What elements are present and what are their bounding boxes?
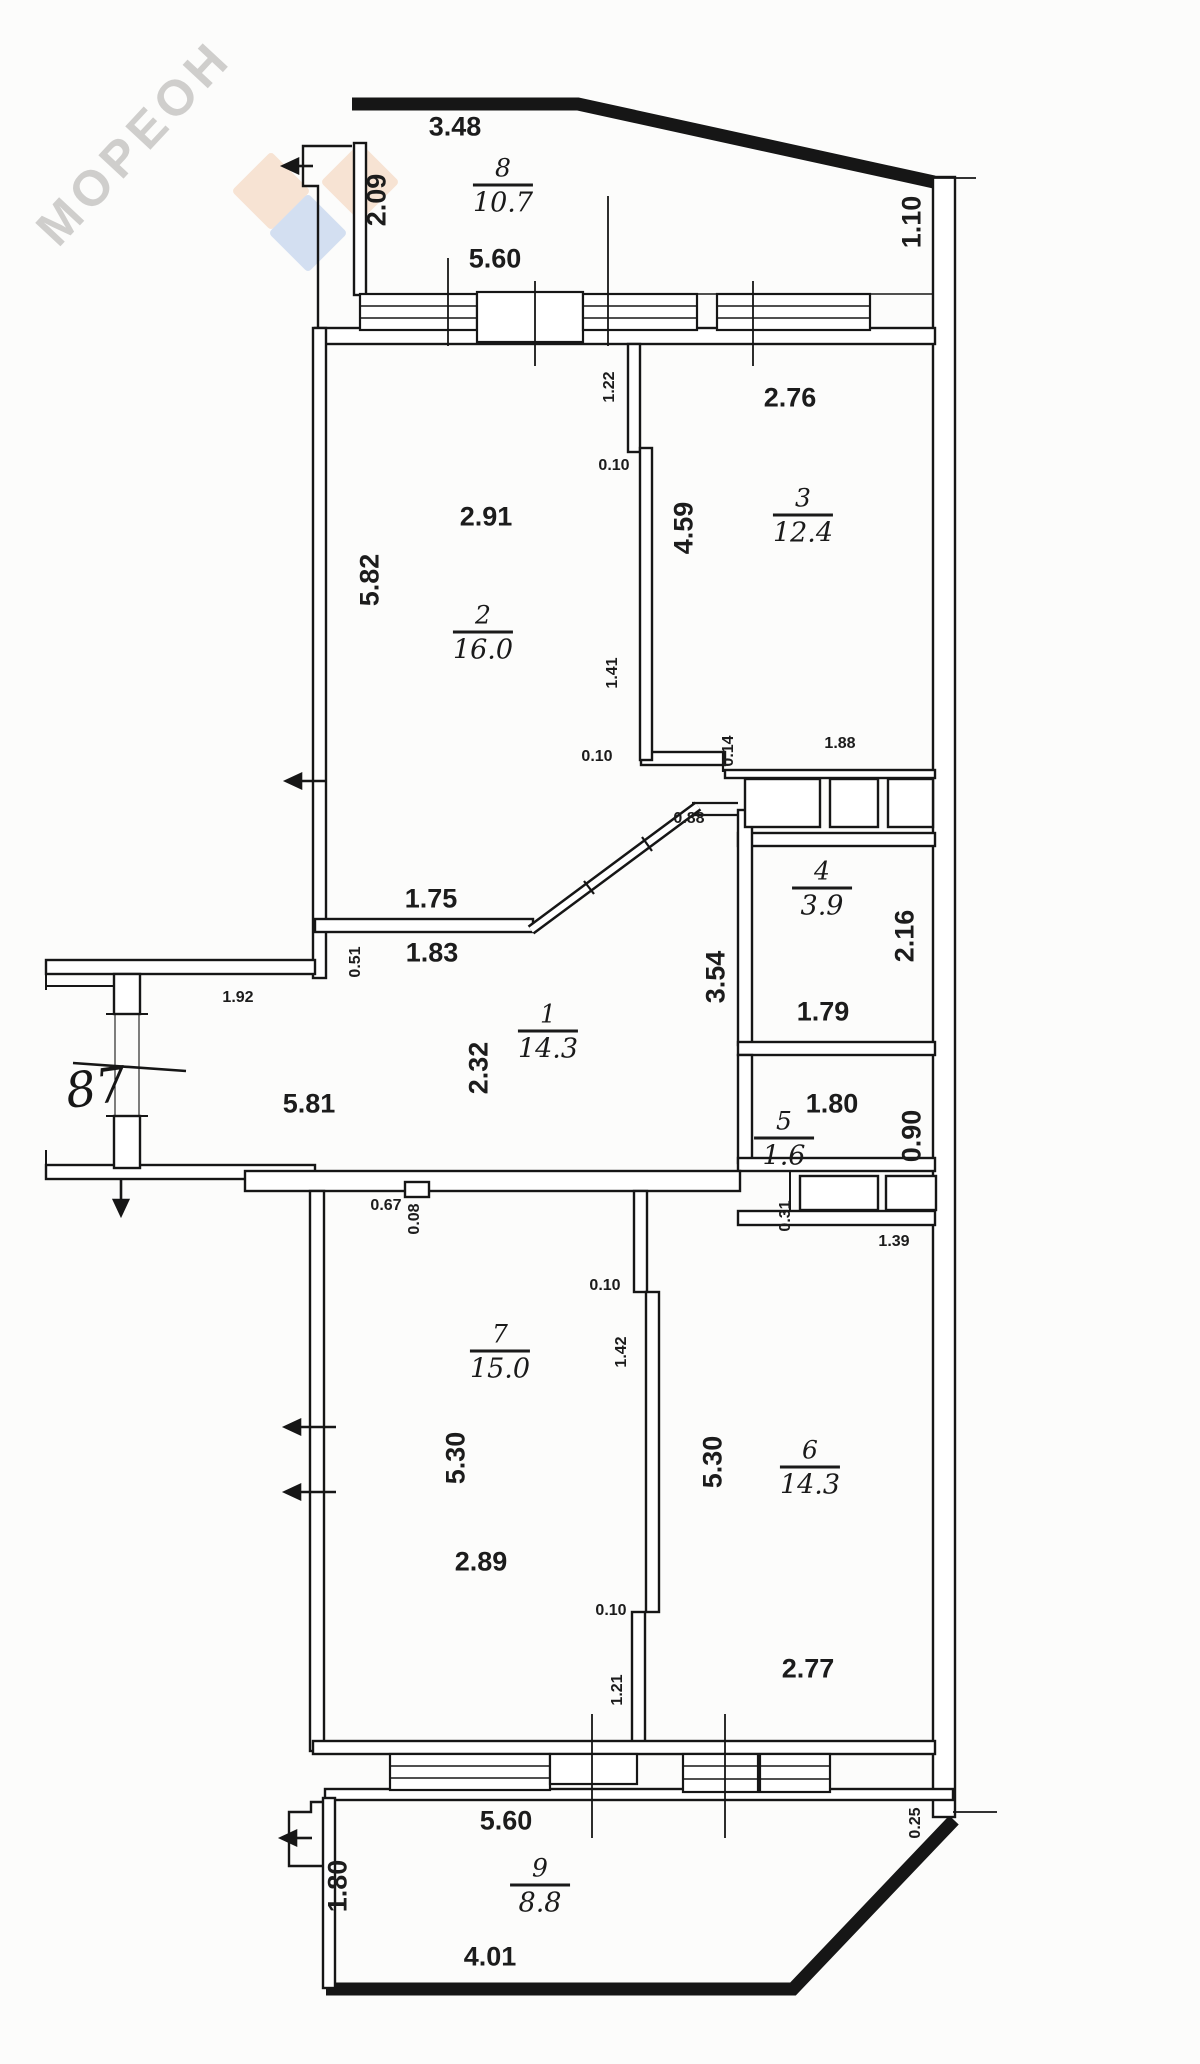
room1-number: 1 [518, 1002, 578, 1033]
dim-room7-height: 5.30 [443, 1432, 470, 1485]
dim-room6-height: 5.30 [700, 1436, 727, 1489]
room2-area: 16.0 [453, 634, 513, 664]
dim-hall-jog: 0.51 [348, 946, 364, 977]
room4-label: 4 3.9 [792, 859, 852, 920]
dim-room4-height: 2.16 [892, 910, 919, 963]
room1-area: 14.3 [518, 1033, 578, 1063]
dim-balcony8-bottom: 5.60 [469, 246, 522, 273]
room1-label: 1 14.3 [518, 1002, 578, 1063]
dim-notch-depth: 0.08 [407, 1203, 423, 1234]
room9-area: 8.8 [510, 1887, 570, 1917]
room6-number: 6 [780, 1438, 840, 1469]
room6-label: 6 14.3 [780, 1438, 840, 1499]
dim-hall-right: 3.54 [703, 951, 730, 1004]
room5-label: 5 1.6 [754, 1109, 814, 1170]
room3-label: 3 12.4 [773, 486, 833, 547]
dim-room6-width: 2.77 [782, 1656, 835, 1683]
dim-room3-height: 4.59 [671, 502, 698, 555]
room9-number: 9 [510, 1856, 570, 1887]
dim-room2-width: 2.91 [460, 504, 513, 531]
dim-hall-length: 5.81 [283, 1091, 336, 1118]
apartment-number: 87 [62, 1056, 130, 1120]
dim-room5-step: 0.31 [778, 1200, 794, 1231]
room2-label: 2 16.0 [453, 603, 513, 664]
dim-hall-seg-b: 1.83 [406, 940, 459, 967]
dim-partition23-mid: 1.41 [605, 657, 621, 688]
room8-area: 10.7 [473, 187, 533, 217]
dim-balcony8-right: 1.10 [899, 196, 926, 249]
dim-partition23-step: 0.10 [598, 458, 629, 474]
dim-door-088: 0.88 [673, 811, 704, 827]
dim-room4-width: 1.79 [797, 999, 850, 1026]
room3-number: 3 [773, 486, 833, 517]
room7-number: 7 [470, 1322, 530, 1353]
dim-room5-height: 0.90 [899, 1110, 926, 1163]
room9-label: 9 8.8 [510, 1856, 570, 1917]
dim-balcony9-right: 0.25 [908, 1807, 924, 1838]
floor-plan: МОРЕОН [0, 0, 1200, 2064]
room3-area: 12.4 [773, 517, 833, 547]
dim-partition76-low: 1.21 [610, 1674, 626, 1705]
dim-room2-wall: 0.10 [581, 749, 612, 765]
room5-area: 1.6 [754, 1140, 814, 1170]
room5-number: 5 [754, 1109, 814, 1140]
dim-partition23-top: 1.22 [602, 371, 618, 402]
dim-balcony8-top: 3.48 [429, 114, 482, 141]
room7-label: 7 15.0 [470, 1322, 530, 1383]
dim-hall-seg-a: 1.75 [405, 886, 458, 913]
dim-partition76-step2: 0.10 [595, 1603, 626, 1619]
room8-number: 8 [473, 156, 533, 187]
dim-room2-height: 5.82 [357, 554, 384, 607]
dim-partition76-mid: 1.42 [614, 1336, 630, 1367]
room4-area: 3.9 [792, 890, 852, 920]
dim-balcony9-left: 1.80 [325, 1860, 352, 1913]
room2-number: 2 [453, 603, 513, 634]
dim-step-014: 0.14 [721, 735, 737, 766]
dim-room7-width: 2.89 [455, 1549, 508, 1576]
room7-area: 15.0 [470, 1353, 530, 1383]
dim-closet-188: 1.88 [824, 736, 855, 752]
dim-closet-139: 1.39 [878, 1234, 909, 1250]
wall-segments [46, 143, 955, 1988]
dim-hall-entry: 1.92 [222, 990, 253, 1006]
room4-number: 4 [792, 859, 852, 890]
dim-room3-width: 2.76 [764, 385, 817, 412]
room8-label: 8 10.7 [473, 156, 533, 217]
walls-drawing [0, 0, 1200, 2064]
dim-hall-width: 2.32 [466, 1042, 493, 1095]
hall-diagonal-wall [531, 803, 738, 930]
dim-notch-width: 0.67 [370, 1198, 401, 1214]
room6-area: 14.3 [780, 1469, 840, 1499]
dim-balcony8-left: 2.09 [364, 174, 391, 227]
dim-partition76-step1: 0.10 [589, 1278, 620, 1294]
dim-balcony9-top: 5.60 [480, 1808, 533, 1835]
dim-balcony9-bottom: 4.01 [464, 1944, 517, 1971]
